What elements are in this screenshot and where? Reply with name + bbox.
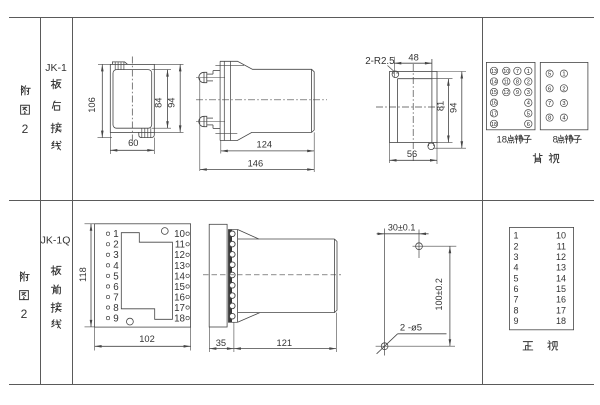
svg-text:6: 6 (548, 86, 551, 92)
svg-text:8: 8 (553, 135, 558, 146)
svg-text:15: 15 (556, 284, 566, 294)
svg-text:2: 2 (514, 241, 519, 251)
svg-text:8: 8 (548, 116, 551, 122)
svg-text:7: 7 (548, 101, 551, 107)
svg-text:12: 12 (503, 90, 509, 96)
svg-text:13: 13 (556, 263, 566, 273)
svg-text:16: 16 (556, 295, 566, 305)
svg-text:12: 12 (556, 252, 566, 262)
svg-text:35: 35 (216, 338, 226, 348)
svg-text:2: 2 (21, 307, 28, 321)
svg-text:9: 9 (516, 90, 519, 96)
svg-text:15: 15 (174, 282, 185, 293)
svg-text:1: 1 (527, 69, 530, 75)
svg-text:4: 4 (113, 261, 119, 272)
svg-text:56: 56 (407, 149, 417, 159)
svg-text:18: 18 (556, 316, 566, 326)
svg-text:3: 3 (113, 250, 119, 261)
svg-text:2-R2.5: 2-R2.5 (365, 56, 395, 67)
svg-text:1: 1 (562, 72, 565, 78)
svg-text:2: 2 (113, 240, 118, 251)
svg-text:17: 17 (491, 111, 497, 117)
svg-text:48: 48 (408, 52, 418, 62)
svg-text:7: 7 (113, 292, 118, 303)
svg-text:8: 8 (516, 80, 519, 86)
svg-text:11: 11 (557, 241, 566, 251)
svg-text:7: 7 (516, 69, 519, 75)
svg-text:14: 14 (491, 80, 497, 86)
svg-text:6: 6 (113, 282, 119, 293)
svg-text:6: 6 (514, 284, 519, 294)
svg-text:81: 81 (435, 101, 445, 111)
svg-text:8: 8 (113, 303, 119, 314)
svg-text:5: 5 (113, 271, 119, 282)
svg-text:3: 3 (562, 101, 565, 107)
svg-text:14: 14 (556, 273, 566, 283)
svg-text:94: 94 (448, 103, 458, 113)
svg-text:106: 106 (87, 97, 97, 113)
svg-text:JK-1: JK-1 (45, 62, 67, 74)
svg-text:10: 10 (503, 69, 509, 75)
svg-text:18: 18 (497, 135, 508, 146)
svg-text:17: 17 (556, 305, 566, 315)
svg-text:5: 5 (514, 273, 519, 283)
svg-text:1: 1 (113, 229, 118, 240)
svg-text:11: 11 (175, 240, 185, 251)
svg-text:4: 4 (514, 263, 519, 273)
svg-text:124: 124 (257, 139, 273, 149)
svg-text:121: 121 (277, 338, 293, 348)
svg-text:3: 3 (514, 252, 519, 262)
svg-text:13: 13 (491, 69, 497, 75)
svg-text:8: 8 (514, 305, 519, 315)
svg-text:15: 15 (491, 90, 497, 96)
svg-text:10: 10 (556, 231, 566, 241)
svg-text:9: 9 (113, 314, 118, 325)
svg-text:84: 84 (153, 98, 163, 108)
svg-text:4: 4 (527, 101, 530, 107)
svg-text:JK-1Q: JK-1Q (41, 235, 71, 247)
svg-text:18: 18 (491, 122, 497, 128)
svg-text:94: 94 (166, 98, 176, 108)
svg-text:13: 13 (174, 261, 185, 272)
svg-text:5: 5 (548, 72, 551, 78)
svg-text:3: 3 (527, 90, 530, 96)
svg-text:60: 60 (128, 138, 138, 148)
svg-text:9: 9 (514, 316, 519, 326)
svg-text:7: 7 (514, 295, 519, 305)
svg-text:2: 2 (22, 122, 29, 136)
svg-text:16: 16 (174, 292, 185, 303)
svg-text:2: 2 (562, 86, 565, 92)
svg-text:118: 118 (78, 267, 88, 282)
svg-text:12: 12 (174, 250, 185, 261)
svg-text:6: 6 (527, 122, 530, 128)
svg-text:10: 10 (174, 229, 185, 240)
svg-text:100±0.2: 100±0.2 (434, 278, 444, 310)
svg-text:18: 18 (174, 314, 185, 325)
svg-text:2 -ø5: 2 -ø5 (400, 323, 422, 334)
svg-text:4: 4 (562, 116, 565, 122)
svg-text:1: 1 (514, 231, 519, 241)
svg-text:30±0.1: 30±0.1 (388, 222, 415, 232)
svg-text:2: 2 (527, 80, 530, 86)
svg-text:5: 5 (527, 111, 530, 117)
svg-text:16: 16 (491, 101, 497, 107)
svg-text:17: 17 (174, 303, 185, 314)
svg-text:14: 14 (174, 271, 185, 282)
svg-text:11: 11 (504, 80, 509, 86)
svg-text:102: 102 (139, 334, 155, 344)
svg-text:146: 146 (248, 158, 264, 168)
